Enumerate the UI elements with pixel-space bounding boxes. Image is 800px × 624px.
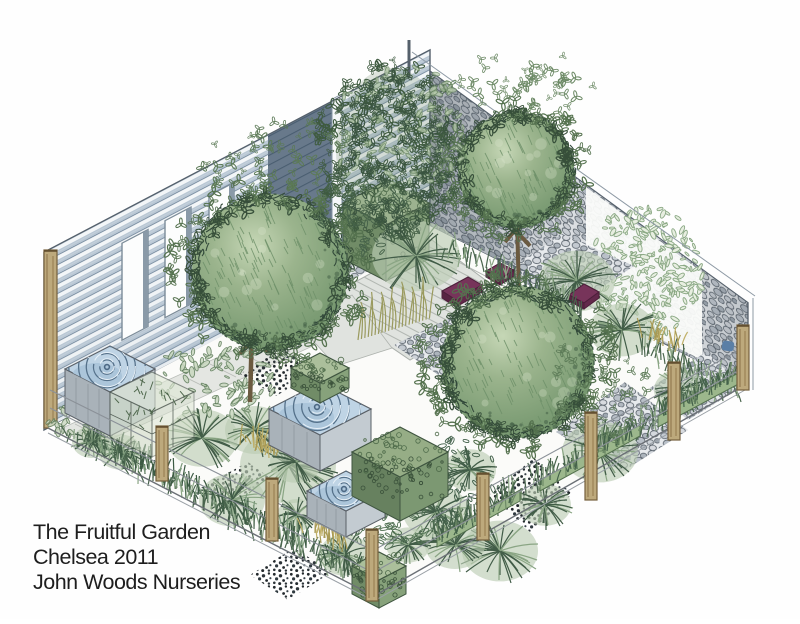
svg-text:John Woods Nurseries: John Woods Nurseries	[33, 570, 240, 594]
svg-text:Chelsea 2011: Chelsea 2011	[33, 545, 158, 569]
svg-text:The Fruitful Garden: The Fruitful Garden	[33, 520, 210, 544]
